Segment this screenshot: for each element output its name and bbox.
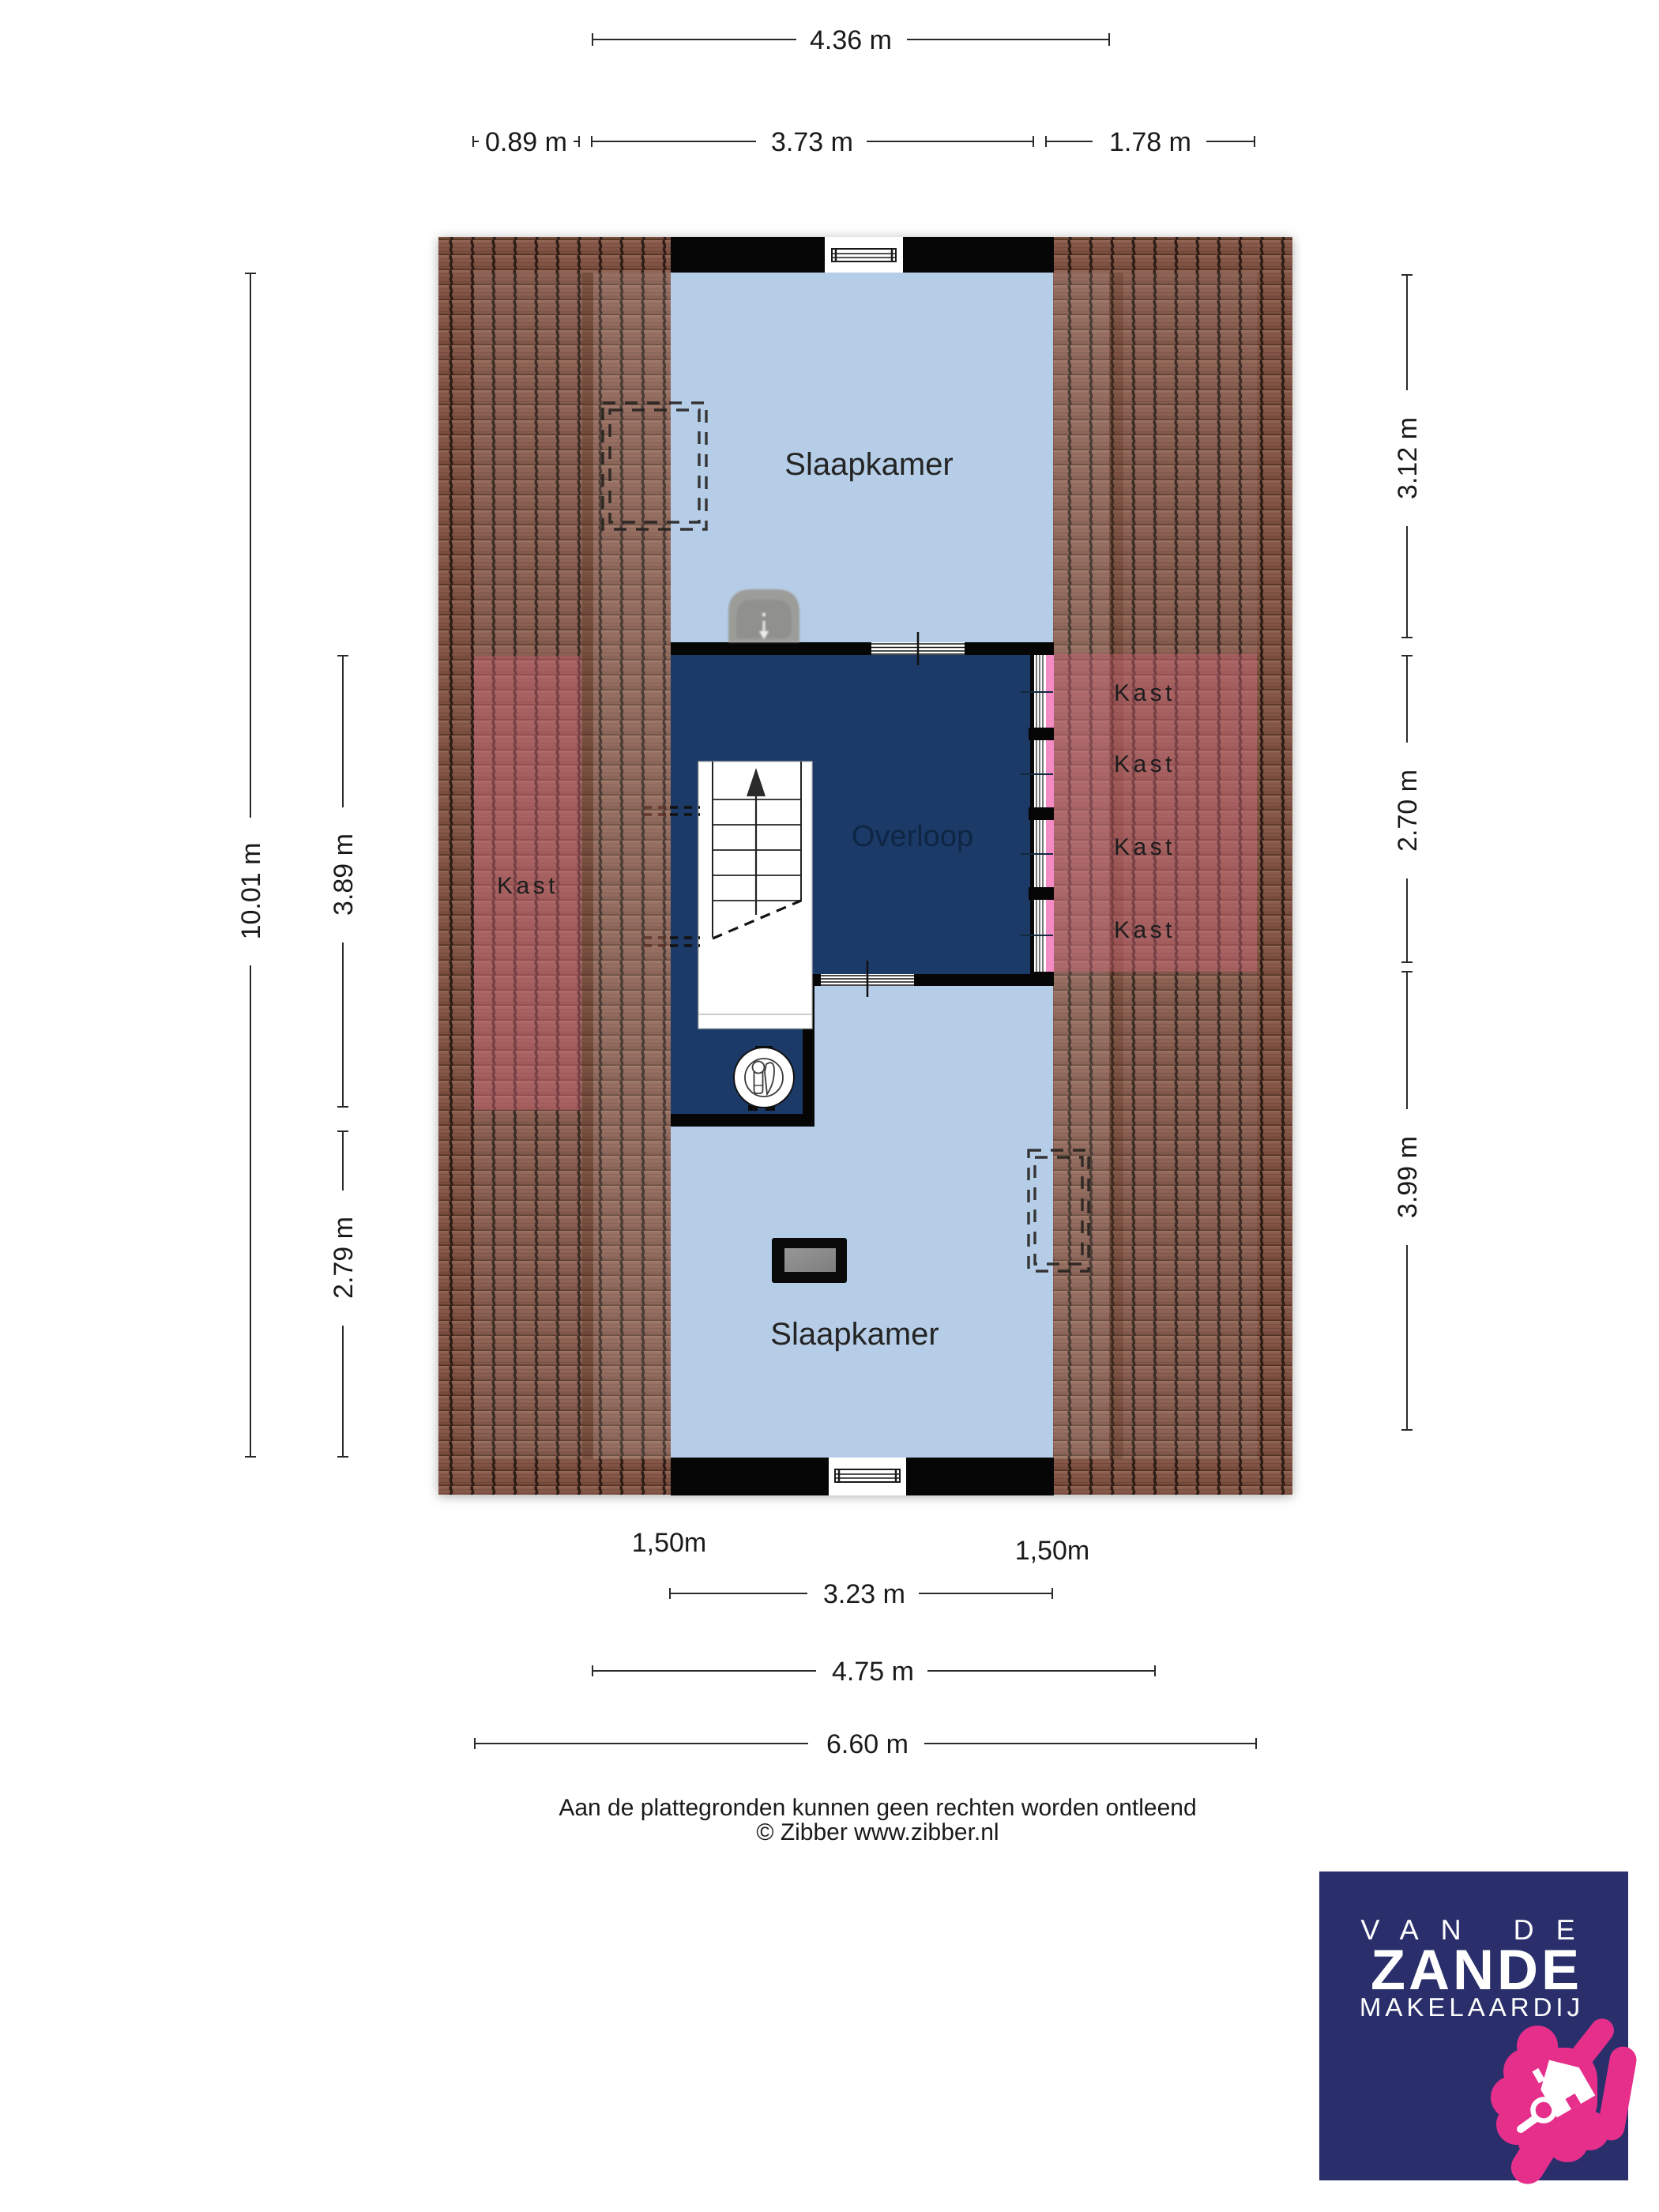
- svg-text:Kast: Kast: [1114, 680, 1176, 706]
- svg-text:Kast: Kast: [1114, 834, 1176, 860]
- svg-text:Aan de plattegronden kunnen ge: Aan de plattegronden kunnen geen rechten…: [559, 1795, 1196, 1821]
- svg-text:1.78 m: 1.78 m: [1109, 127, 1191, 157]
- svg-text:4.36 m: 4.36 m: [810, 25, 892, 55]
- svg-text:3.99 m: 3.99 m: [1393, 1136, 1423, 1218]
- svg-text:Overloop: Overloop: [852, 820, 973, 853]
- svg-text:3.23 m: 3.23 m: [823, 1579, 905, 1609]
- svg-text:Slaapkamer: Slaapkamer: [784, 447, 953, 482]
- svg-text:2.70 m: 2.70 m: [1393, 769, 1423, 852]
- svg-text:10.01 m: 10.01 m: [236, 843, 266, 940]
- svg-text:4.75 m: 4.75 m: [832, 1657, 914, 1687]
- svg-text:Slaapkamer: Slaapkamer: [770, 1317, 939, 1352]
- svg-text:Kast: Kast: [497, 873, 559, 899]
- svg-text:Kast: Kast: [1114, 917, 1176, 943]
- svg-text:2.79 m: 2.79 m: [329, 1217, 359, 1299]
- svg-text:MAKELAARDIJ: MAKELAARDIJ: [1360, 1992, 1584, 2022]
- svg-text:1,50m: 1,50m: [1015, 1536, 1090, 1566]
- svg-text:© Zibber www.zibber.nl: © Zibber www.zibber.nl: [756, 1819, 999, 1845]
- svg-text:3.73 m: 3.73 m: [771, 127, 853, 157]
- svg-text:Kast: Kast: [1114, 751, 1176, 777]
- svg-text:6.60 m: 6.60 m: [826, 1729, 908, 1759]
- svg-text:0.89 m: 0.89 m: [485, 127, 567, 157]
- svg-text:1,50m: 1,50m: [632, 1528, 707, 1558]
- svg-text:3.89 m: 3.89 m: [329, 833, 359, 916]
- svg-text:3.12 m: 3.12 m: [1393, 417, 1423, 499]
